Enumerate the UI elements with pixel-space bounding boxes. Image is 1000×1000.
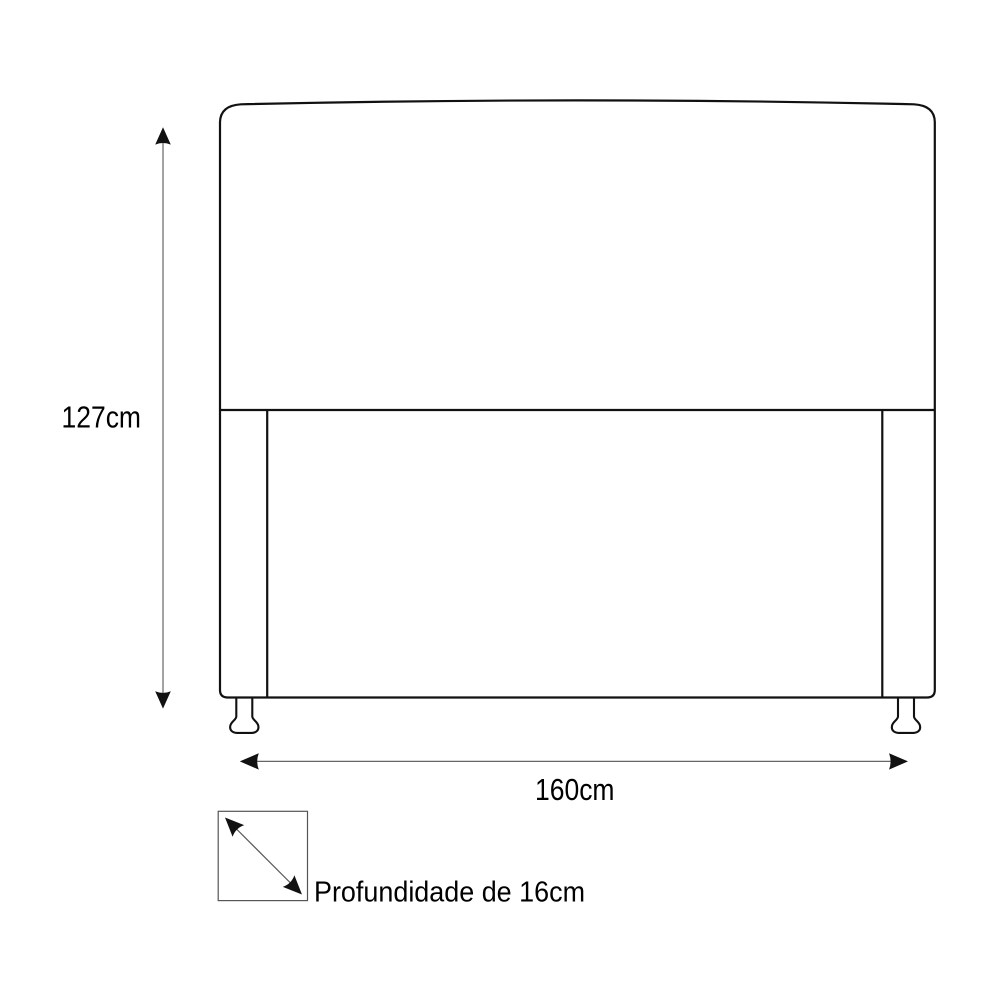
svg-text:160cm: 160cm [535,772,615,807]
svg-text:127cm: 127cm [62,400,142,435]
svg-text:Profundidade de 16cm: Profundidade de 16cm [314,877,585,909]
